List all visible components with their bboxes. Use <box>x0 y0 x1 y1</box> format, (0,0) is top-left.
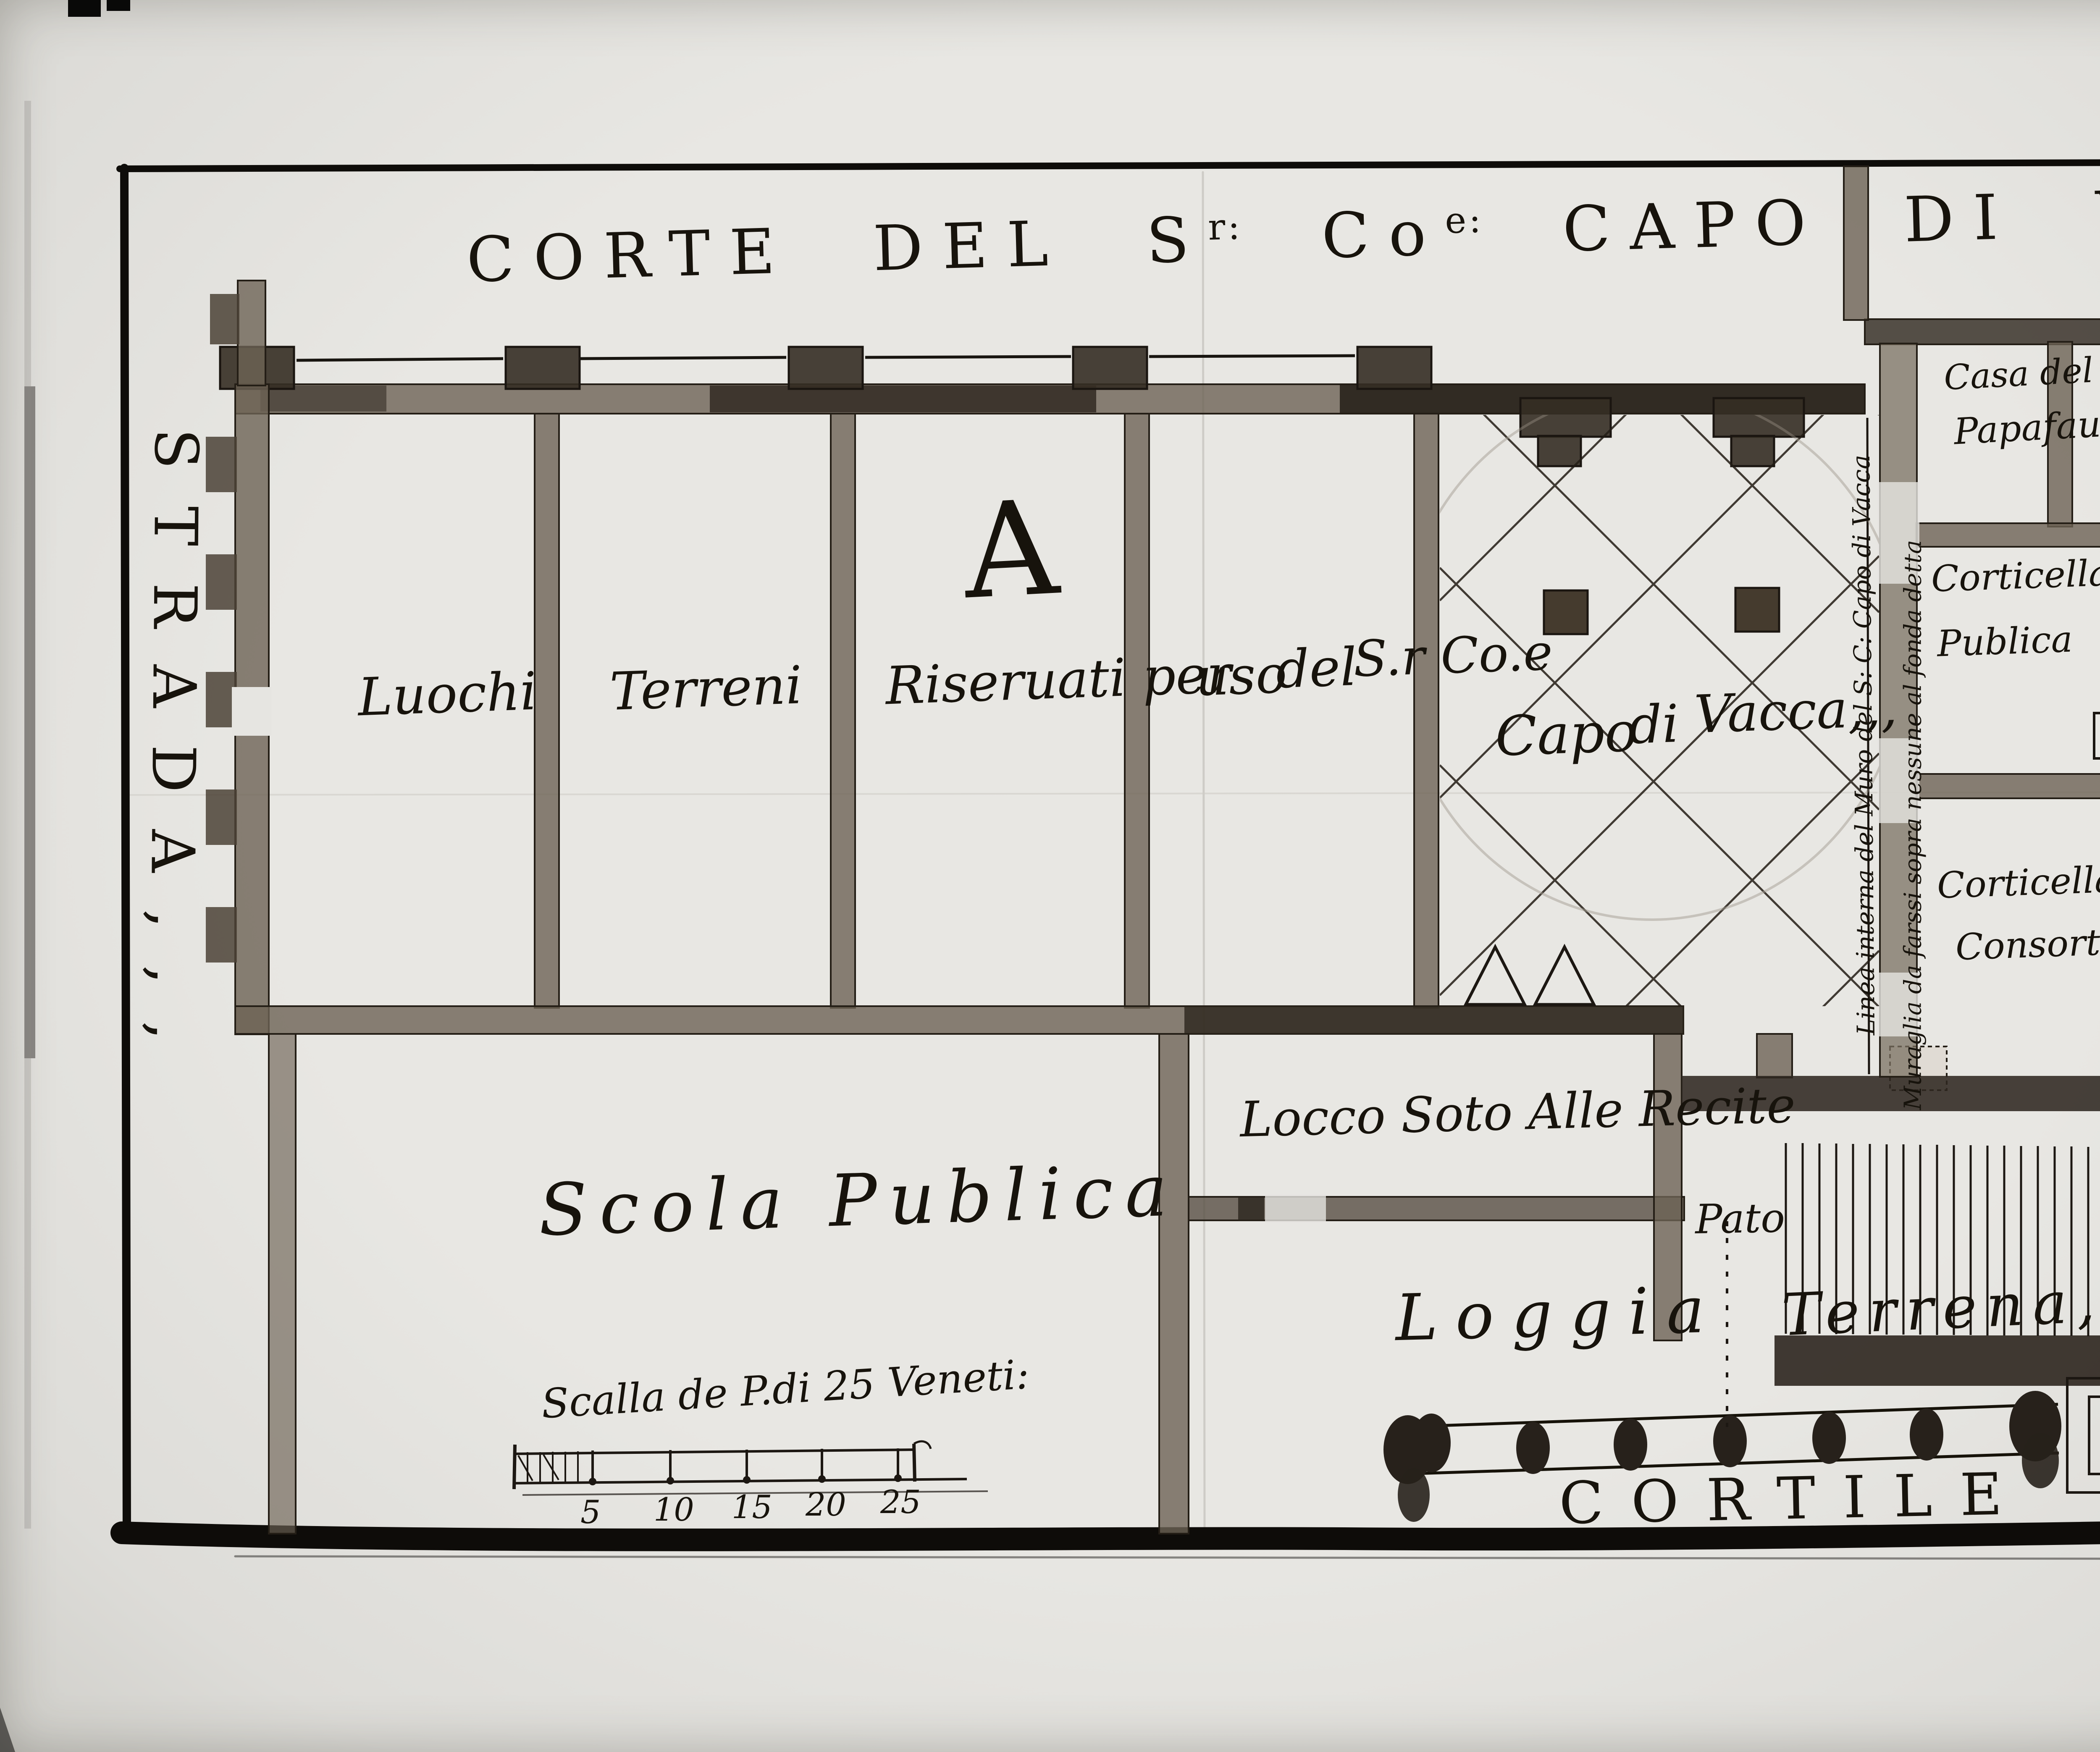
pato-label: Pato <box>1695 1194 1785 1243</box>
corticella-publica-label-line1: Corticella <box>1930 552 2100 601</box>
street-label: STRADA,,, <box>136 428 210 1067</box>
room-label-uso: uso <box>1194 644 1288 708</box>
muraglia-annotation: Muraglia da farssi sopra nessune al fond… <box>1900 504 1927 1146</box>
corticella-consortiva-label-line1: Corticella <box>1936 859 2100 907</box>
entrance-perron-steps <box>2067 1378 2100 1492</box>
title-superscript: e: <box>1444 199 1484 242</box>
hall-floor-column-bases <box>1466 947 1594 1005</box>
loggia-label: Loggia <box>1394 1272 1723 1355</box>
hall-pier-squares <box>1544 588 1779 634</box>
room-label-del: del <box>1275 637 1358 700</box>
scale-minor-ticks <box>518 1451 578 1483</box>
scale-tick-10: 10 <box>654 1491 694 1528</box>
linea-interna-annotation: Linea interna del Muro del S: C: Capo di… <box>1846 428 1880 1062</box>
cortile-label: CORTILE <box>1558 1460 2030 1537</box>
corticella-consortiva-label-line2: Consortiua <box>1955 920 2100 969</box>
manuscript-floor-plan-photo: CORTE DEL Sr: Coe: CAPO DI VACCA ,,, STR… <box>0 0 2100 1752</box>
scale-tick-20: 20 <box>806 1486 846 1523</box>
room-label-luochi: Luochi <box>357 661 538 728</box>
room-label-terreni: Terreni <box>609 655 803 722</box>
room-label-sr-coe: S.r Co.e <box>1352 623 1554 688</box>
room-label-di: di <box>1628 694 1680 756</box>
scale-tick-15: 15 <box>732 1488 772 1526</box>
corticella-publica-label-line2: Publica <box>1936 618 2073 665</box>
room-label-capo: Capo <box>1494 700 1638 768</box>
scale-tick-25: 25 <box>880 1483 921 1521</box>
title-superscript: r: <box>1207 206 1243 249</box>
casa-papafava-label-line2: Papafaua <box>1953 402 2100 453</box>
marker-a: A <box>960 472 1062 628</box>
scale-tick-5: 5 <box>580 1493 601 1531</box>
room-label-riseruati-per: Riseruati per <box>885 644 1233 717</box>
small-stair <box>2094 713 2100 758</box>
title-part: Co <box>1242 197 1446 274</box>
